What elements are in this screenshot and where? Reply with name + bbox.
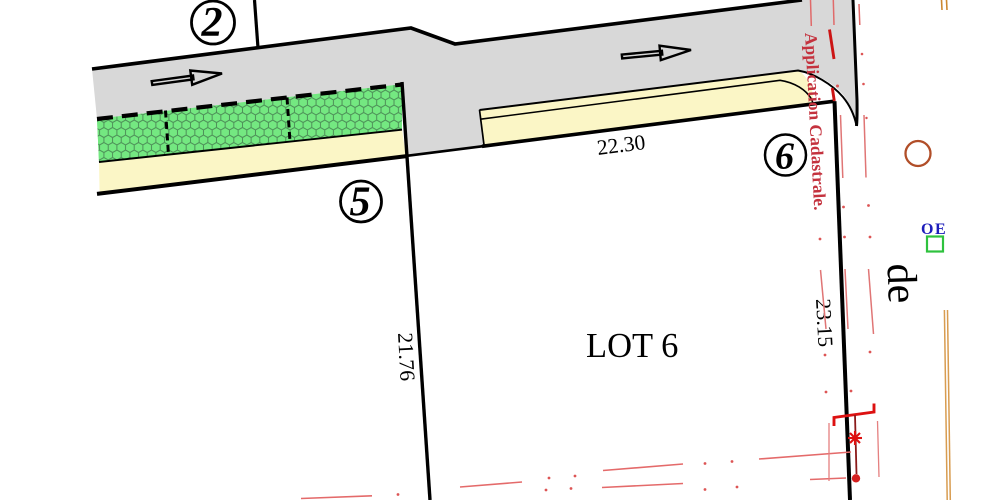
svg-text:6: 6 <box>775 136 794 178</box>
svg-text:de: de <box>878 263 925 304</box>
svg-text:LOT 6: LOT 6 <box>586 327 678 365</box>
svg-text:5: 5 <box>350 180 371 226</box>
svg-text:2: 2 <box>201 0 223 46</box>
svg-text:21.76: 21.76 <box>393 332 420 382</box>
svg-text:22.30: 22.30 <box>596 130 647 160</box>
